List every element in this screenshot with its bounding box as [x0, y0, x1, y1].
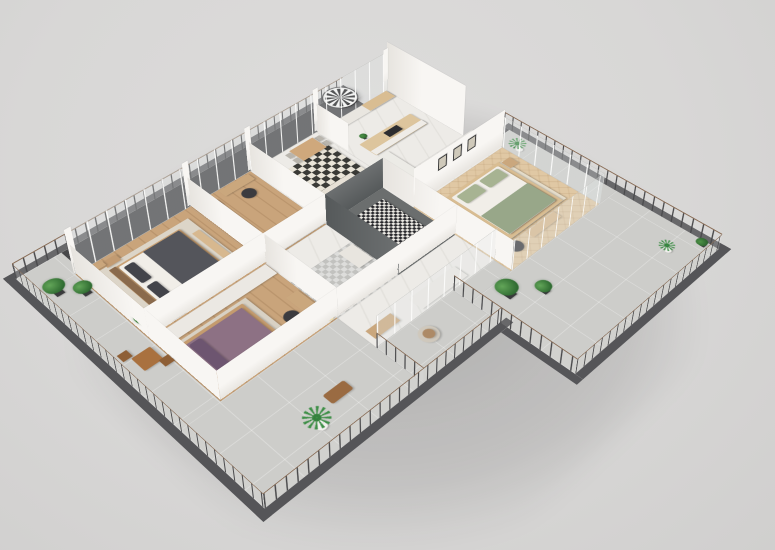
floorplan-render-page [0, 0, 775, 550]
wall-art-frame [438, 153, 447, 171]
wall-art-frame [467, 134, 476, 152]
wall-art-frame [452, 144, 461, 162]
apartment-plan [15, 63, 757, 550]
isometric-scene [0, 0, 775, 550]
